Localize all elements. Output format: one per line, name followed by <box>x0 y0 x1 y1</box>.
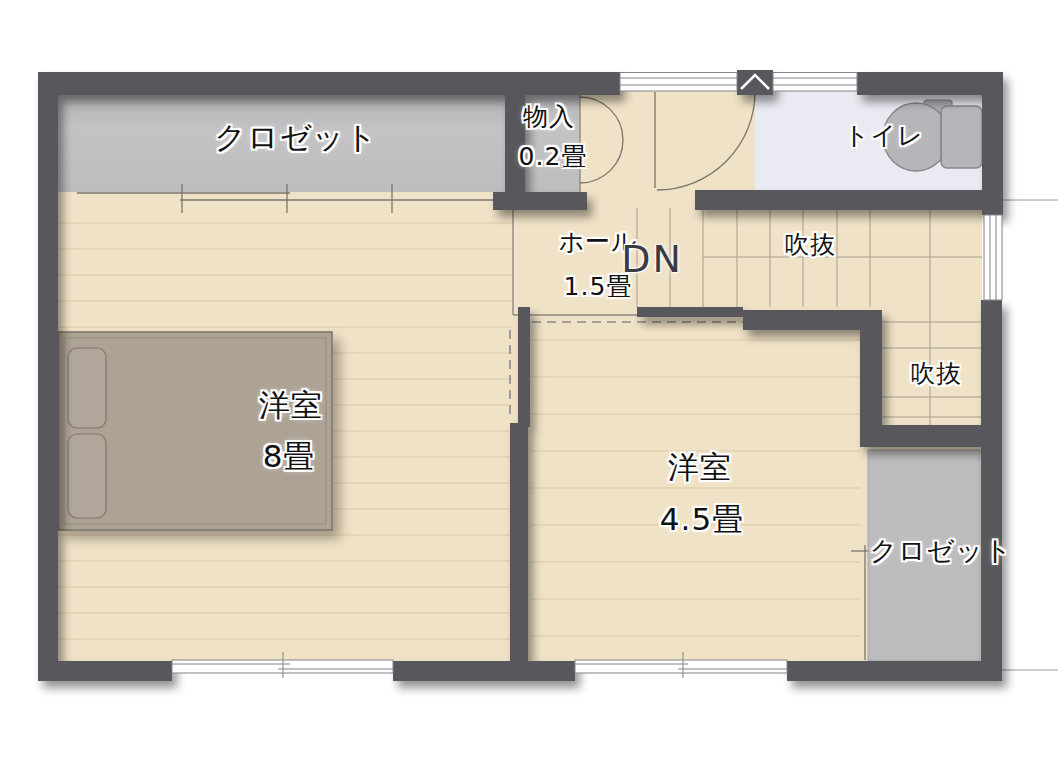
label-closet-bottom: クロゼット <box>869 537 1012 564</box>
window-top-right <box>773 73 857 92</box>
pillow <box>68 348 106 428</box>
bed <box>58 332 332 530</box>
floor-plan: クロゼット 物入 0.2畳 トイレ ホール 1.5畳 DN 吹抜 吹抜 洋室 8… <box>0 0 1058 764</box>
pillow <box>68 434 106 518</box>
label-bedroom8-area: 8畳 <box>263 441 316 472</box>
label-stairs-dn: DN <box>621 240 683 278</box>
label-toilet: トイレ <box>844 123 924 148</box>
label-bedroom8-name: 洋室 <box>259 390 323 421</box>
label-void-upper: 吹抜 <box>784 232 836 257</box>
label-closet-top: クロゼット <box>214 122 378 153</box>
label-storage-area: 0.2畳 <box>519 144 588 169</box>
window-top-left <box>620 73 737 92</box>
label-bedroom45-name: 洋室 <box>668 452 732 483</box>
window-right <box>984 215 1002 300</box>
label-storage-name: 物入 <box>523 104 575 129</box>
label-bedroom45-area: 4.5畳 <box>660 504 744 535</box>
label-void-lower: 吹抜 <box>910 361 962 386</box>
